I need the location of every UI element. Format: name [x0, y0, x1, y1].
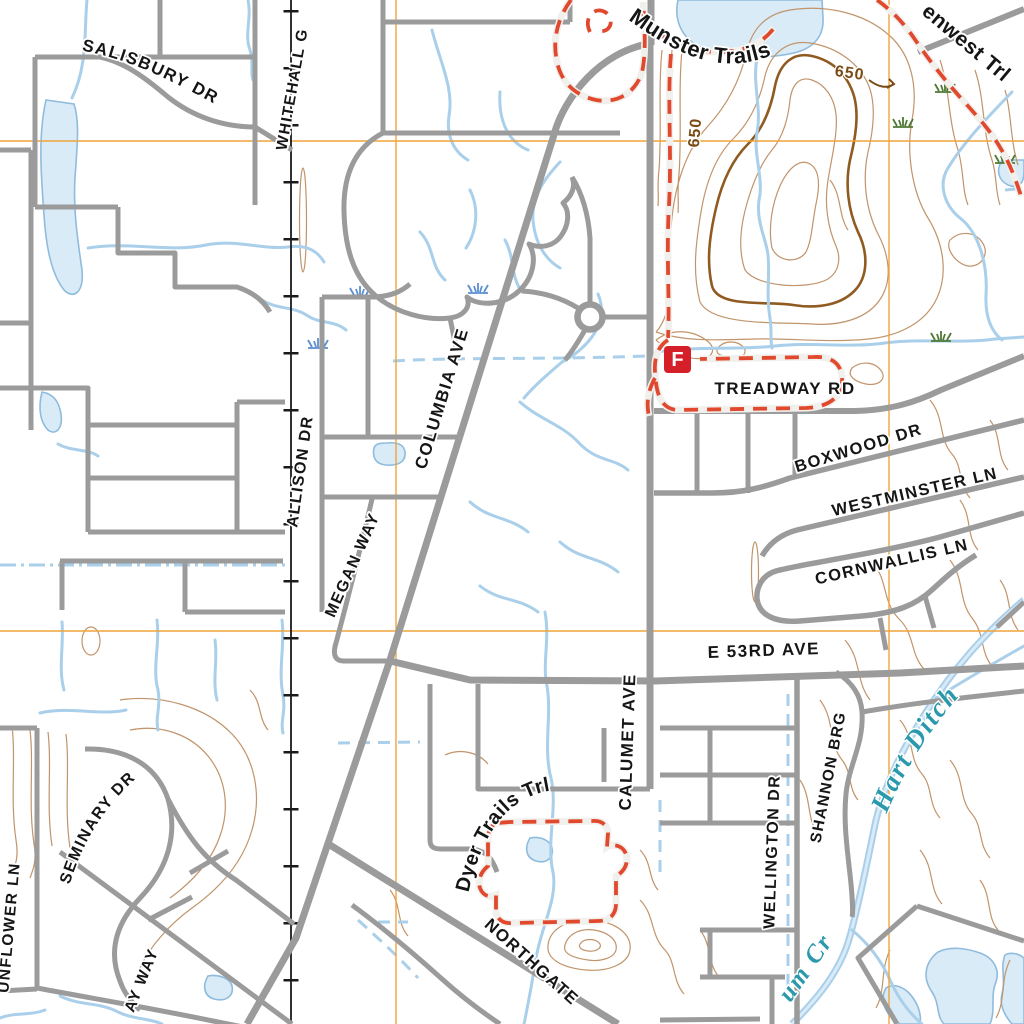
street-label-allison: ALLISON DR: [284, 414, 317, 528]
trail-label-dyer: Dyer Trails Trl: [452, 774, 552, 894]
street-label-columbia: COLUMBIA AVE: [411, 325, 472, 471]
roundabout: [578, 305, 603, 330]
contour-label-650-a: 650: [686, 117, 706, 148]
road-e53rd-ave: [390, 661, 1024, 681]
road-columbia-ave: [247, 44, 648, 1024]
water-label-plum-cr: um Cr: [773, 929, 839, 1007]
water-label-hart-ditch: Hart Ditch: [864, 679, 965, 817]
street-label-whitehall: WHITEHALL G: [273, 27, 311, 152]
street-label-wellington: WELLINGTON DR: [761, 774, 783, 929]
trail-marker-f[interactable]: F: [664, 346, 691, 373]
map-svg: F SALISBURY DR WHITEHALL G Munster Trail…: [0, 0, 1024, 1024]
street-label-ay-way: AY WAY: [121, 946, 162, 1015]
street-label-cornwallis: CORNWALLIS LN: [813, 536, 970, 589]
street-label-megan: MEGAN WAY: [322, 510, 383, 620]
street-label-seminary: SEMINARY DR: [57, 769, 139, 886]
topo-map-canvas[interactable]: F SALISBURY DR WHITEHALL G Munster Trail…: [0, 0, 1024, 1024]
street-label-westminster: WESTMINSTER LN: [830, 464, 999, 520]
road-salisbury-dr: [100, 57, 292, 150]
contour-label-650-b: 650: [834, 63, 866, 84]
contour-arrow: [869, 79, 894, 88]
road-network: [0, 0, 1024, 1024]
street-label-sunflower: UNFLOWER LN: [0, 862, 24, 994]
marsh-icons: [308, 82, 1015, 348]
road-shannon-brg: [836, 672, 862, 917]
map-labels: SALISBURY DR WHITEHALL G Munster Trails …: [0, 0, 1015, 1015]
trail-marker-f-label: F: [671, 349, 683, 371]
street-label-salisbury: SALISBURY DR: [81, 36, 222, 108]
street-label-e53rd: E 53RD AVE: [707, 639, 820, 662]
street-label-northgate: NORTHGATE: [481, 915, 583, 1009]
street-label-treadway: TREADWAY RD: [714, 379, 855, 398]
